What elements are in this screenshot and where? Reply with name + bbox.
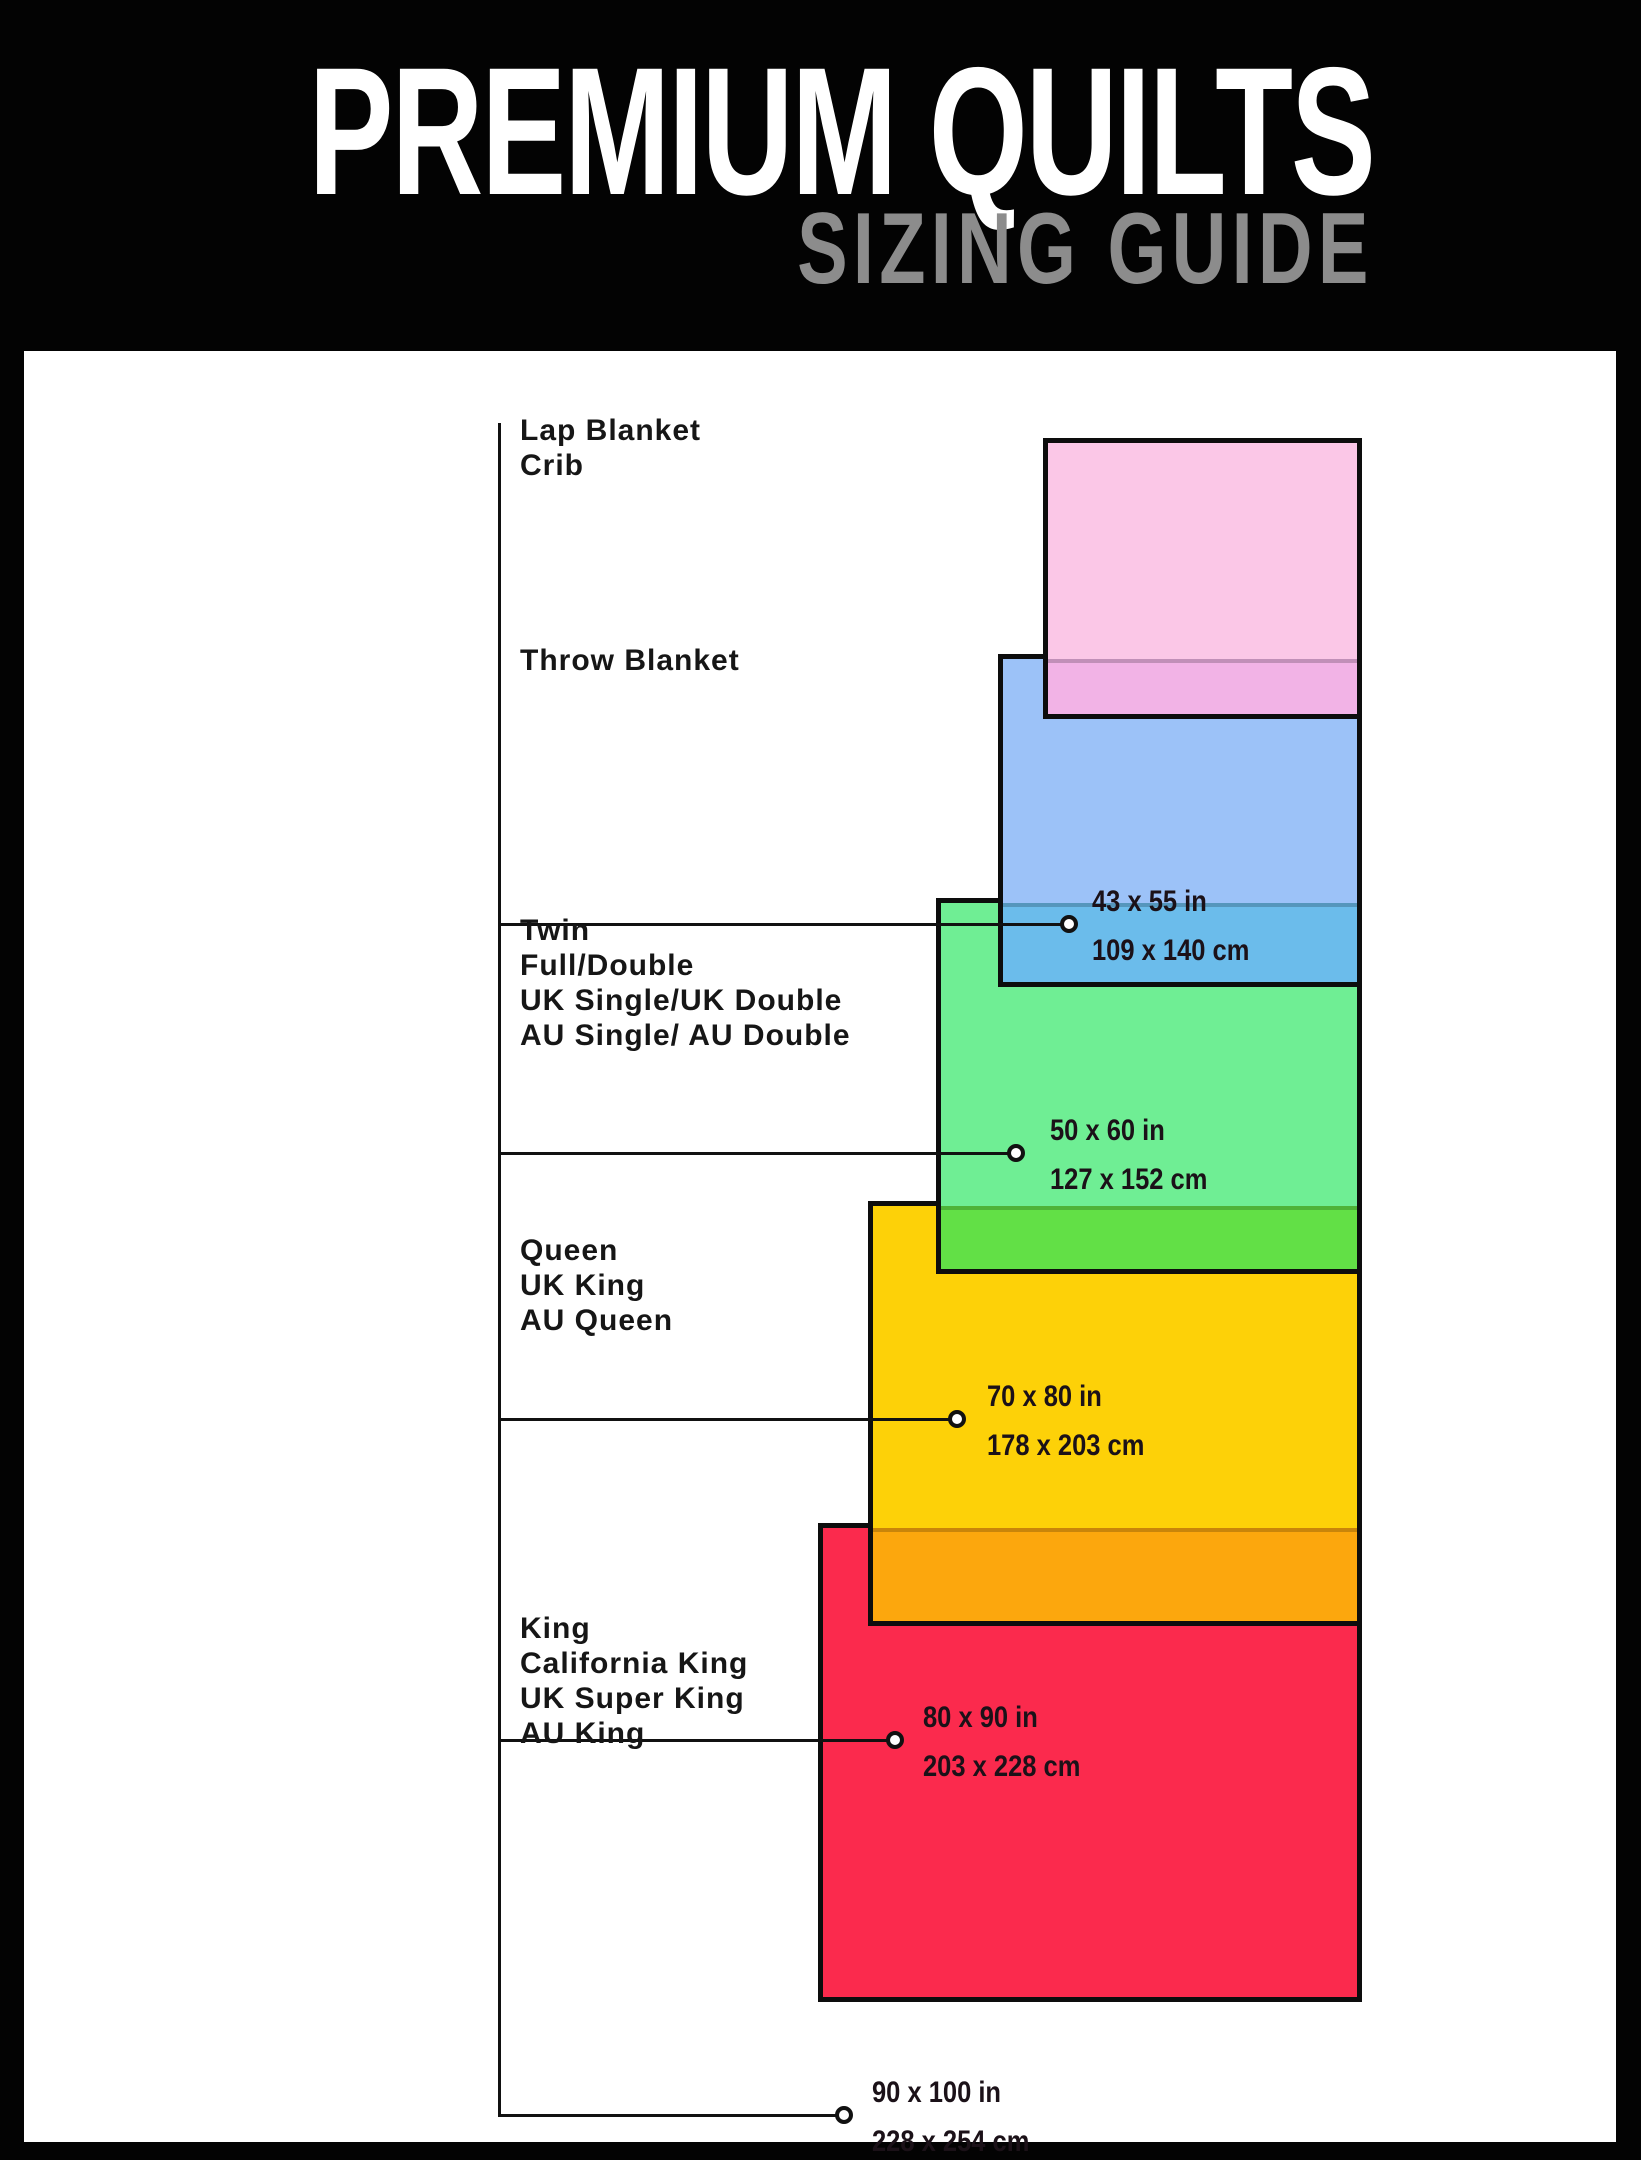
leader-hline-throw [498, 1152, 1016, 1155]
label-line: Twin [520, 913, 851, 948]
label-line: California King [520, 1646, 748, 1681]
label-line: UK Single/UK Double [520, 983, 851, 1018]
label-line: Queen [520, 1233, 673, 1268]
page-subtitle-text: SIZING GUIDE [798, 199, 1374, 300]
label-line: UK King [520, 1268, 673, 1303]
size-label-throw: Throw Blanket [520, 643, 740, 678]
leader-dot-king [835, 2106, 853, 2124]
leader-vline-king [498, 1619, 501, 2117]
label-line: AU Queen [520, 1303, 673, 1338]
dim-cm-king: 228 x 254 cm [872, 2126, 1029, 2158]
size-label-twin: Twin Full/Double UK Single/UK Double AU … [520, 913, 851, 1053]
label-line: Crib [520, 448, 701, 483]
dim-inches-king: 90 x 100 in [872, 2077, 1001, 2109]
label-line: Throw Blanket [520, 643, 740, 678]
dim-cm-lap-crib: 109 x 140 cm [1092, 935, 1249, 967]
dim-cm-throw: 127 x 152 cm [1050, 1164, 1207, 1196]
label-line: Lap Blanket [520, 413, 701, 448]
dim-inches-throw: 50 x 60 in [1050, 1115, 1165, 1147]
size-label-lap-crib: Lap Blanket Crib [520, 413, 701, 483]
leader-hline-twin [498, 1418, 957, 1421]
label-line: UK Super King [520, 1681, 748, 1716]
dim-inches-queen: 80 x 90 in [923, 1702, 1038, 1734]
overlap-strip-green-yellow [941, 1206, 1357, 1269]
label-line: King [520, 1611, 748, 1646]
label-line: AU Single/ AU Double [520, 1018, 851, 1053]
leader-dot-throw [1007, 1144, 1025, 1162]
label-line: Full/Double [520, 948, 851, 983]
leader-dot-queen [886, 1731, 904, 1749]
sizing-guide-page: PREMIUM QUILTS SIZING GUIDE Lap Blanket … [0, 0, 1641, 2160]
leader-hline-king [498, 2114, 844, 2117]
diagram-panel: Lap Blanket Crib 43 x 55 in 109 x 140 cm… [24, 351, 1616, 2142]
label-line: AU King [520, 1716, 748, 1751]
dim-inches-twin: 70 x 80 in [987, 1381, 1102, 1413]
overlap-strip-pink-blue [1048, 659, 1357, 714]
dim-inches-lap-crib: 43 x 55 in [1092, 886, 1207, 918]
leader-dot-lap-crib [1060, 915, 1078, 933]
dim-cm-queen: 203 x 228 cm [923, 1751, 1080, 1783]
page-subtitle: SIZING GUIDE [605, 199, 1374, 300]
size-label-king: King California King UK Super King AU Ki… [520, 1611, 748, 1751]
leader-dot-twin [948, 1410, 966, 1428]
dim-cm-twin: 178 x 203 cm [987, 1430, 1144, 1462]
size-label-queen: Queen UK King AU Queen [520, 1233, 673, 1338]
overlap-strip-yellow-red [873, 1528, 1357, 1621]
